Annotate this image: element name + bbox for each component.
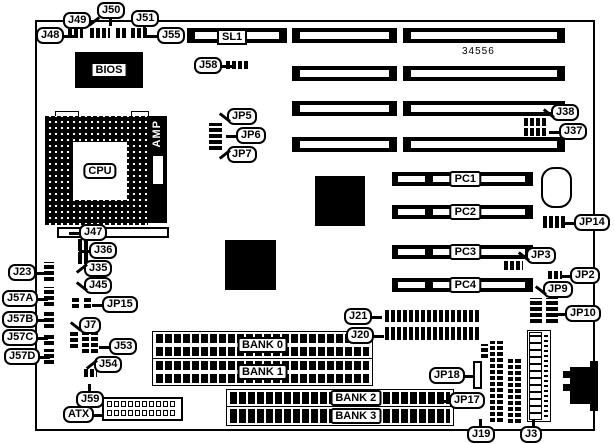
memory-bank-label: BANK 0	[237, 337, 288, 353]
cpu-socket-center: CPU	[73, 142, 127, 200]
pci-slot: PC1	[392, 172, 533, 186]
battery	[541, 167, 572, 208]
callout-j47: J47	[79, 224, 107, 241]
bios-label: BIOS	[92, 63, 127, 77]
callout-jp5: JP5	[227, 108, 257, 125]
bios-chip: BIOS	[75, 52, 143, 88]
callout-jp3: JP3	[526, 247, 556, 264]
callout-jp14: JP14	[574, 214, 610, 231]
header-connector-j49	[88, 28, 110, 38]
pci-slot-label: PC4	[450, 277, 481, 293]
amp-label: AMP	[151, 120, 163, 147]
power-connector	[527, 330, 551, 422]
callout-jp7: JP7	[227, 146, 257, 163]
edge-connector-j57c	[44, 333, 54, 347]
callout-j37: J37	[559, 123, 587, 140]
callout-j53: J53	[109, 338, 137, 355]
callout-j48: J48	[36, 27, 64, 44]
callout-jp18: JP18	[429, 367, 465, 384]
memory-bank: BANK 2	[226, 389, 454, 407]
callout-jp17: JP17	[449, 392, 485, 409]
header-connector-j50	[114, 28, 126, 38]
pci-slot: PC4	[392, 278, 533, 292]
callout-j3: J3	[520, 426, 542, 443]
connector-j3	[508, 359, 521, 425]
jumper-jp15	[84, 296, 91, 310]
memory-bank: BANK 3	[226, 406, 454, 426]
cpu-socket: CPU	[45, 116, 148, 225]
jumper-jp9	[530, 298, 542, 325]
amp-window	[153, 156, 163, 184]
memory-bank: BANK 1	[152, 358, 373, 386]
callout-j23: J23	[8, 264, 36, 281]
small-header	[481, 344, 488, 360]
jumper-j53-a	[82, 331, 89, 355]
callout-atx: ATX	[63, 406, 94, 423]
jumper-block-jp5-jp7	[209, 123, 222, 152]
pci-slot-label: PC3	[450, 244, 481, 260]
callout-j50: J50	[97, 2, 125, 19]
jumper-jp3	[502, 261, 523, 270]
pci-slot-label: PC2	[450, 204, 481, 220]
isa-slot-segment	[403, 66, 565, 81]
jumper-j7	[70, 331, 78, 350]
callout-j51: J51	[131, 10, 159, 27]
connector-j20	[383, 327, 479, 340]
callout-j35: J35	[84, 260, 112, 277]
amp-regulator: AMP	[148, 116, 167, 223]
callout-j57d: J57D	[4, 348, 40, 365]
callout-jp2: JP2	[570, 267, 600, 284]
connector-j19	[490, 341, 503, 424]
atx-power-connector	[102, 397, 183, 421]
pci-slot: PC2	[392, 205, 533, 219]
jumper-j38	[522, 118, 548, 126]
callout-j49: J49	[63, 12, 91, 29]
callout-j36: J36	[89, 242, 117, 259]
callout-j7: J7	[79, 317, 101, 334]
callout-j19: J19	[467, 426, 495, 443]
callout-j55: J55	[157, 27, 185, 44]
isa-slot-segment	[292, 66, 397, 81]
jumper-j53-b	[91, 331, 98, 355]
keyboard-connector-shell	[590, 361, 598, 411]
callout-j57b: J57B	[2, 311, 38, 328]
callout-j21: J21	[344, 308, 372, 325]
callout-jp9: JP9	[543, 281, 573, 298]
pci-slot: PC3	[392, 245, 533, 259]
callout-j38: J38	[551, 104, 579, 121]
connector-j21	[383, 310, 481, 322]
chipset-chip	[315, 176, 365, 226]
chipset-chip	[225, 240, 276, 290]
jumper-jp10	[546, 298, 558, 325]
keyboard-connector-body	[570, 367, 591, 404]
isa-slot-segment	[403, 101, 565, 116]
memory-bank-label: BANK 1	[237, 364, 288, 380]
memory-bank-label: BANK 3	[330, 408, 381, 424]
cpu-label: CPU	[83, 163, 116, 179]
header-connector-j51-j55	[129, 28, 149, 38]
isa-slot-segment	[292, 28, 397, 43]
jumper-j37	[522, 128, 548, 136]
isa-slot-segment	[292, 101, 397, 116]
callout-j20: J20	[346, 327, 374, 344]
isa-slot-segment	[403, 137, 565, 152]
pci-slot-label: PC1	[450, 171, 481, 187]
isa-slot-segment	[292, 137, 397, 152]
motherboard-diagram: BIOS SL1 34556 CPU AMP	[0, 0, 614, 444]
callout-j54: J54	[94, 356, 122, 373]
callout-j45: J45	[84, 277, 112, 294]
isa-slot-segment	[403, 28, 565, 43]
callout-jp15: JP15	[102, 296, 138, 313]
callout-j57c: J57C	[2, 329, 38, 346]
memory-bank-label: BANK 2	[330, 390, 381, 406]
callout-j58: J58	[194, 57, 222, 74]
callout-jp6: JP6	[236, 127, 266, 144]
callout-j57a: J57A	[2, 290, 38, 307]
jumper-j45	[72, 296, 79, 310]
memory-bank: BANK 0	[152, 331, 373, 359]
board-part-number: 34556	[462, 46, 495, 57]
sl1-label: SL1	[217, 29, 247, 45]
callout-jp10: JP10	[565, 305, 601, 322]
